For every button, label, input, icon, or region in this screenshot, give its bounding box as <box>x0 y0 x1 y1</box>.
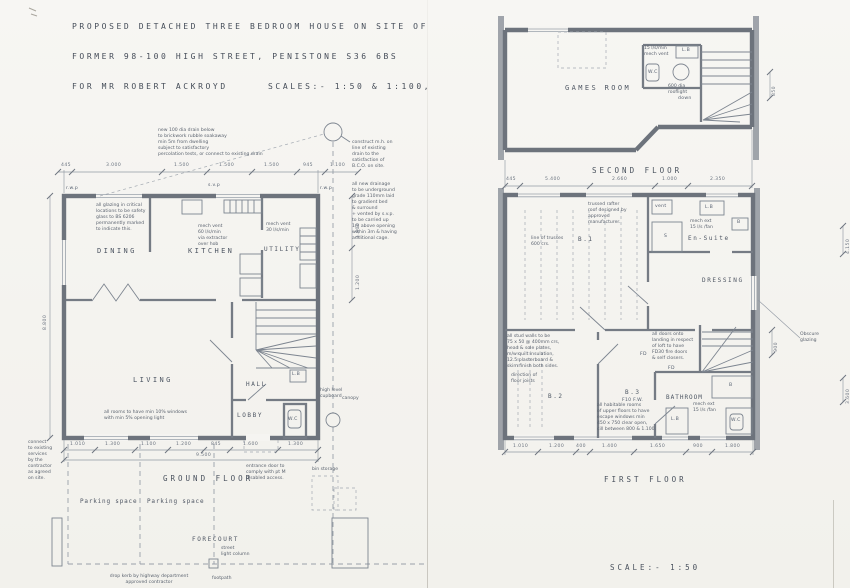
ground-floor-label: GROUND FLOOR <box>163 474 253 483</box>
fixture-label-wc-2f: W.C <box>648 70 658 75</box>
title-scales: SCALES:- 1:50 & 1:100, <box>268 82 431 91</box>
mark-fd-1: FD <box>640 352 647 357</box>
site-label-parking-1: Parking space <box>80 498 137 505</box>
dim: 845 <box>211 442 221 447</box>
pencil-mark <box>29 8 37 16</box>
first-floor-label: FIRST FLOOR <box>604 475 687 484</box>
scale-note: SCALE:- 1:50 <box>610 563 700 572</box>
room-label-b3: B.3 <box>625 389 641 396</box>
fixture-label-vent: vent <box>655 204 666 209</box>
note-obscure-glazing: Obscure glazing <box>800 332 834 344</box>
fixture-label-lb-2f: L.B <box>682 48 690 53</box>
second-floor-plan-drawing <box>501 16 773 189</box>
dim-right-upper: 1.800 <box>356 223 361 238</box>
site-label-drop-kerb: drop kerb by highway department approved… <box>94 574 204 586</box>
dim: 1.650 <box>650 444 665 449</box>
stair-down-label: down <box>678 96 692 101</box>
note-truss: trussed rafter roof designed by approved… <box>588 202 634 226</box>
note-floor-joists: direction of floor joists <box>511 373 549 385</box>
note-drainage: all new drainage to be underground grade… <box>352 182 412 242</box>
dim: 445 <box>506 177 516 182</box>
note-glazing: all glazing in critical locations to be … <box>96 203 166 233</box>
note-utility-vent: mech vent 30 l/s/min <box>266 222 300 234</box>
dim: 1.010 <box>70 442 85 447</box>
dim: 2.660 <box>612 177 627 182</box>
dim: 945 <box>303 163 313 168</box>
dim-right-2f: 850 <box>772 86 777 96</box>
mark-rwp-left: r.w.p <box>66 186 78 191</box>
room-label-b1: B.1 <box>578 236 594 243</box>
room-label-ensuite: En-Suite <box>688 235 730 242</box>
dim: 2.350 <box>710 177 725 182</box>
room-label-lobby: LOBBY <box>237 412 263 419</box>
dim: 1.500 <box>174 163 189 168</box>
dim: 3.000 <box>106 163 121 168</box>
dim-right-lower: 1.200 <box>356 275 361 290</box>
site-label-footpath: footpath <box>212 576 248 582</box>
fixture-label-wc-1f: W.C <box>731 418 741 423</box>
room-label-hall: HALL <box>246 381 267 388</box>
site-label-forecourt: FORECOURT <box>192 536 239 543</box>
title-line-1: PROPOSED DETACHED THREE BEDROOM HOUSE ON… <box>72 22 428 31</box>
dim: 1.500 <box>264 163 279 168</box>
note-rooflight: 600 dia rooflight <box>668 84 696 96</box>
fixture-label-lb-ensuite: L.B <box>705 205 713 210</box>
note-bath-vent: mech ext 15 l/s /fan <box>693 402 723 414</box>
fixture-label-bath: B <box>729 383 732 388</box>
note-escape-windows: all habitable rooms of upper floors to h… <box>597 403 657 433</box>
dim: 1.300 <box>288 442 303 447</box>
dim: 1.800 <box>725 444 740 449</box>
site-label-bin-storage: bin storage <box>312 467 358 473</box>
mark-rwp-right: r.w.p <box>320 186 332 191</box>
room-label-kitchen: KITCHEN <box>188 247 234 255</box>
dim-right-4150: 4.150 <box>846 239 850 254</box>
note-ensuite-vent: mech ext 15 l/s /fan <box>690 219 720 231</box>
dim-right-3600: 3.600 <box>846 389 850 404</box>
dim: 1.300 <box>105 442 120 447</box>
dim-total: 9.500 <box>196 453 211 458</box>
room-label-living: LIVING <box>133 376 173 384</box>
first-floor-plan-drawing <box>501 188 846 455</box>
fixture-label-wc: W.C <box>288 417 298 422</box>
room-label-dining: DINING <box>97 247 137 255</box>
site-label-parking-2: Parking space <box>147 498 204 505</box>
note-soakaway: new 100 dia drain below to brickwork rub… <box>158 128 278 158</box>
dim: 1.400 <box>602 444 617 449</box>
mark-fd-2: FD <box>668 366 675 371</box>
note-vent-2f: 15 l/s/min mech vent <box>644 46 674 58</box>
dim: 1.100 <box>141 442 156 447</box>
note-windows: all rooms to have min 10% windows with m… <box>104 410 214 422</box>
site-label-street-light: street light column <box>221 546 261 558</box>
room-label-games-room: GAMES ROOM <box>565 84 631 92</box>
dim: 1.200 <box>176 442 191 447</box>
fixture-label-lb: L.B <box>292 372 300 377</box>
fixture-label-shower: S <box>664 234 667 239</box>
dim: 400 <box>576 444 586 449</box>
second-floor-label: SECOND FLOOR <box>592 166 682 175</box>
note-connect: connect to existing services by the cont… <box>28 440 62 482</box>
architectural-drawing-sheet: PROPOSED DETACHED THREE BEDROOM HOUSE ON… <box>0 0 850 588</box>
dim: 1.500 <box>219 163 234 168</box>
dim: 1.010 <box>513 444 528 449</box>
dim: 5.400 <box>545 177 560 182</box>
room-label-b2: B.2 <box>548 393 564 400</box>
note-entrance: entrance door to comply with pt M disabl… <box>246 464 298 482</box>
dim-left: 8.800 <box>43 315 48 330</box>
dim-right-900: 900 <box>774 342 779 352</box>
dim: 1.000 <box>662 177 677 182</box>
note-manhole: construct m.h. on line of existing drain… <box>352 140 412 170</box>
dim: 445 <box>61 163 71 168</box>
dim: 1.200 <box>549 444 564 449</box>
mark-svp: s.v.p <box>208 183 220 188</box>
note-truss-lines: line of trusses 600 crs. <box>531 236 573 248</box>
dim: 900 <box>693 444 703 449</box>
room-label-bathroom: BATHROOM <box>666 394 703 401</box>
fixture-label-basin: B <box>737 220 740 225</box>
title-line-3: FOR MR ROBERT ACKROYD <box>72 82 228 91</box>
room-label-utility: UTILITY <box>264 246 301 253</box>
note-canopy: canopy <box>342 396 372 402</box>
sheet-edge <box>833 500 834 588</box>
note-fire-doors: all doors onto landing in respect of lof… <box>652 332 698 362</box>
dim: 1.600 <box>243 442 258 447</box>
room-label-dressing: DRESSING <box>702 277 744 284</box>
fixture-label-lb-bathroom: L.B <box>671 417 679 422</box>
note-kitchen-vent: mech vent 60 l/s/min via extractor over … <box>198 224 243 248</box>
dim: 1.100 <box>330 163 345 168</box>
title-line-2: FORMER 98-100 HIGH STREET, PENISTONE S36… <box>72 52 398 61</box>
note-stud-walls: all stud walls to be 75 x 50 @ 400mm crs… <box>507 334 565 370</box>
